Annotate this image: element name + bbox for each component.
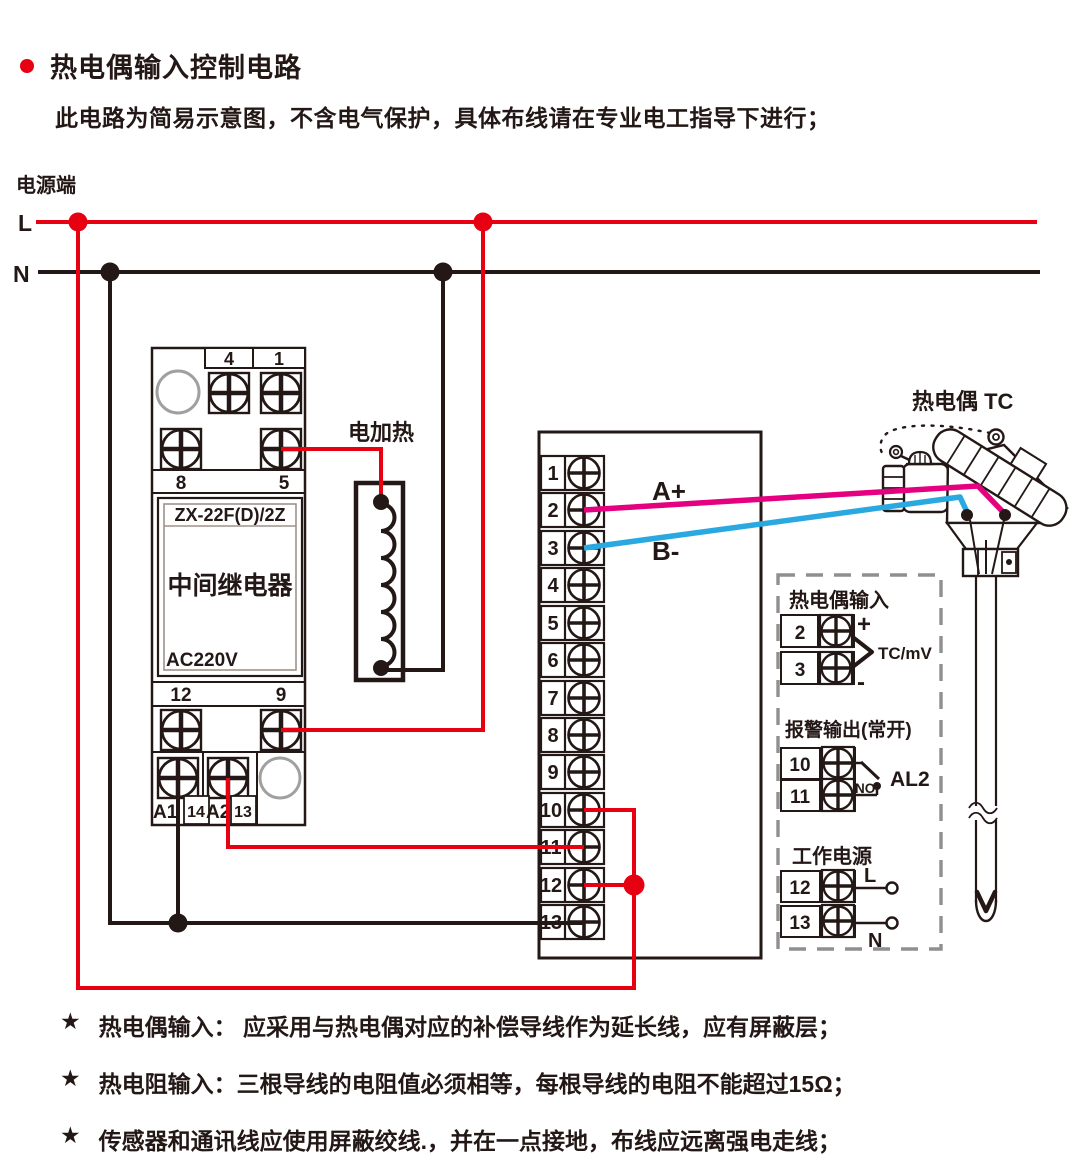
panel-screw-12 (822, 870, 854, 902)
svg-text:3: 3 (547, 538, 558, 560)
star-icon: ★ (60, 1065, 81, 1092)
svg-text:5: 5 (547, 613, 558, 635)
power-rails: 电源端 L N (13, 174, 1040, 287)
svg-text:6: 6 (547, 650, 558, 672)
note-item: ★ 传感器和通讯线应使用屏蔽绞线.，并在一点接地，布线应远离强电走线； (60, 1122, 1060, 1156)
live-label: L (18, 210, 32, 236)
relay-model: ZX-22F(D)/2Z (174, 505, 285, 525)
note-text: 传感器和通讯线应使用屏蔽绞线.，并在一点接地，布线应远离强电走线； (99, 1122, 841, 1156)
relay-screw-8 (161, 429, 201, 469)
tc-input-title: 热电偶输入 (789, 588, 889, 612)
supply-l-node (887, 883, 898, 894)
relay-terminal-5-label: 5 (279, 473, 290, 494)
a-plus-label: A+ (652, 476, 686, 506)
relay-terminal-1-label: 1 (274, 349, 284, 369)
panel-t3-label: 3 (795, 660, 806, 681)
note-item: ★ 热电阻输入：三根导线的电阻值必须相等，每根导线的电阻不能超过15Ω； (60, 1065, 1060, 1099)
tc-bracket (854, 638, 872, 666)
relay-terminal-9-label: 9 (276, 685, 287, 706)
alarm-no-label: NO (855, 781, 875, 796)
terminal-strip: 1 2 3 4 5 6 7 8 9 10 11 12 13 (539, 432, 761, 958)
page: 热电偶输入控制电路 此电路为简易示意图，不含电气保护，具体布线请在专业电工指导下… (0, 0, 1080, 1174)
svg-text:1: 1 (547, 463, 558, 485)
tc-neck (947, 523, 1037, 549)
svg-text:7: 7 (547, 688, 558, 710)
svg-text:12: 12 (540, 875, 562, 897)
relay-13-label: 13 (234, 804, 252, 821)
star-icon: ★ (60, 1122, 81, 1149)
tc-tip-arrow (977, 892, 995, 911)
tc-signal-tag: TC/mV (878, 644, 933, 663)
alarm-tag: AL2 (890, 768, 930, 791)
supply-n-node (887, 918, 898, 929)
svg-text:4: 4 (547, 575, 559, 597)
relay-terminal-8-label: 8 (176, 473, 187, 494)
tc-probe (969, 576, 997, 921)
svg-text:10: 10 (540, 800, 562, 822)
thermocouple-label: 热电偶 TC (912, 389, 1014, 414)
io-panel: 热电偶输入 2 3 + - TC/mV 报警输出(常开) 10 11 (778, 575, 941, 952)
tc-plus-label: + (857, 611, 871, 638)
supply-n-label: N (868, 930, 882, 952)
note-text: 热电偶输入： 应采用与热电偶对应的补偿导线作为延长线，应有屏蔽层； (99, 1008, 841, 1042)
panel-screw-10 (822, 747, 854, 779)
circuit-diagram: 电源端 L N 4 1 8 5 ZX-22F(D)/2Z 中 (0, 0, 1080, 1005)
panel-screw-13 (822, 905, 854, 937)
relay-screw-4 (209, 373, 249, 413)
relay-screw-1 (261, 373, 301, 413)
heater-label: 电加热 (348, 420, 414, 445)
relay-indicator-bottom (260, 758, 300, 798)
notes: ★ 热电偶输入： 应采用与热电偶对应的补偿导线作为延长线，应有屏蔽层； ★ 热电… (60, 1008, 1060, 1174)
relay-indicator-top (157, 371, 199, 413)
relay-14-label: 14 (187, 804, 205, 821)
relay-voltage: AC220V (166, 650, 238, 671)
panel-t12-label: 12 (789, 878, 810, 899)
note-text: 热电阻输入：三根导线的电阻值必须相等，每根导线的电阻不能超过15Ω； (99, 1065, 856, 1099)
relay-name: 中间继电器 (167, 571, 293, 600)
panel-screw-2 (820, 615, 852, 647)
alarm-switch-blade (861, 762, 879, 779)
note-item: ★ 热电偶输入： 应采用与热电偶对应的补偿导线作为延长线，应有屏蔽层； (60, 1008, 1060, 1042)
neutral-label: N (13, 261, 30, 287)
supply-l-label: L (864, 865, 876, 887)
power-label: 电源端 (16, 174, 76, 197)
tc-minus-label: - (857, 669, 865, 696)
relay: 4 1 8 5 ZX-22F(D)/2Z 中间继电器 AC220V 12 9 (152, 348, 305, 825)
relay-a1-label: A1 (153, 802, 178, 823)
svg-text:8: 8 (547, 725, 558, 747)
panel-screw-11 (822, 779, 854, 811)
panel-t2-label: 2 (795, 623, 806, 644)
svg-text:9: 9 (547, 762, 558, 784)
panel-t13-label: 13 (789, 913, 810, 934)
panel-t10-label: 10 (789, 755, 810, 776)
star-icon: ★ (60, 1008, 81, 1035)
relay-terminal-12-label: 12 (170, 685, 191, 706)
relay-screw-12 (161, 710, 201, 750)
supply-title: 工作电源 (792, 844, 872, 868)
relay-terminal-4-label: 4 (224, 349, 234, 369)
svg-text:2: 2 (547, 500, 558, 522)
b-minus-label: B- (652, 536, 679, 566)
panel-t11-label: 11 (790, 787, 811, 808)
panel-screw-3 (820, 652, 852, 684)
alarm-title: 报警输出(常开) (785, 718, 912, 741)
